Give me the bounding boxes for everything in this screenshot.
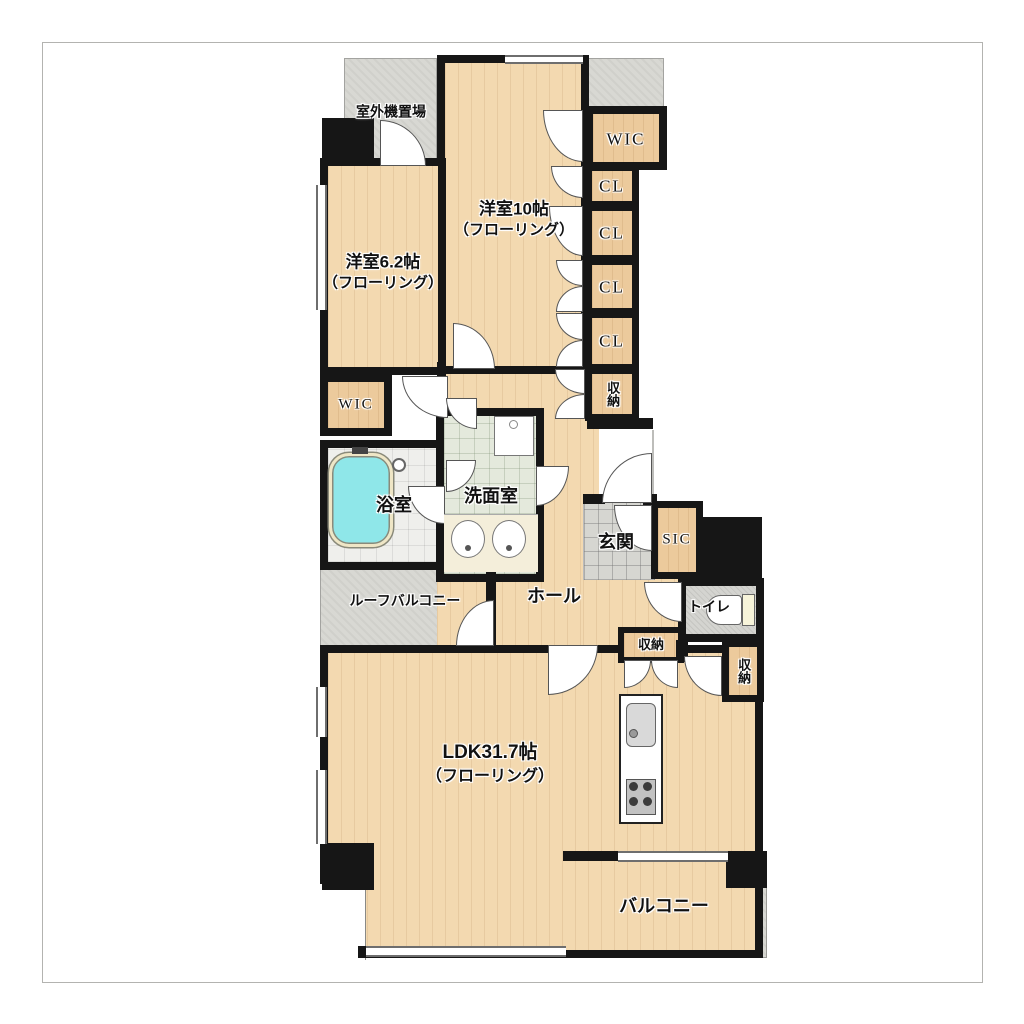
shower-icon — [392, 458, 406, 472]
label-wic-top: WIC — [606, 128, 645, 149]
wall-column-bottomleft — [322, 843, 374, 890]
label-ldk: LDK31.7帖 — [442, 741, 537, 765]
wall — [563, 851, 623, 861]
sink-bowl — [451, 520, 485, 558]
label-storage-hall: 収納 — [638, 637, 664, 653]
label-cl2: CL — [599, 222, 625, 243]
label-sic: SIC — [662, 531, 691, 550]
floorplan: 室外機置場 洋室10帖 （フローリング） 洋室6.2帖 （フローリング） WIC… — [0, 0, 1024, 1024]
window-balcony — [618, 851, 728, 862]
wall-column-balcony — [726, 851, 767, 888]
bathtub-faucet-icon — [352, 447, 368, 454]
label-entrance: 玄関 — [598, 531, 634, 554]
label-roof-balcony: ルーフバルコニー — [350, 592, 461, 610]
label-hall: ホール — [527, 585, 581, 608]
label-bedroom62: 洋室6.2帖 — [346, 251, 421, 272]
label-storage-ldk: 収納 — [735, 658, 751, 684]
label-bedroom62-sub: （フローリング） — [323, 275, 443, 294]
stove-burner-icon — [643, 797, 652, 806]
washing-machine-drain-icon — [509, 420, 518, 429]
window — [316, 770, 327, 844]
label-bedroom10: 洋室10帖 — [479, 198, 549, 219]
window-ldk-south — [366, 946, 566, 957]
kitchen-sink — [626, 703, 656, 747]
sink-drain-icon — [465, 545, 471, 551]
sink-bowl — [492, 520, 526, 558]
porch-edge-line — [652, 430, 654, 500]
label-ldk-sub: （フローリング） — [426, 767, 554, 787]
kitchen-faucet-icon — [629, 729, 638, 738]
label-cl4: CL — [599, 330, 625, 351]
label-bathroom: 浴室 — [376, 494, 412, 517]
label-cl1: CL — [599, 175, 625, 196]
window — [316, 687, 327, 737]
area-outdoor-gray-topright — [588, 58, 664, 110]
label-toilet: トイレ — [688, 598, 730, 616]
sink-drain-icon — [506, 545, 512, 551]
stove-burner-icon — [629, 797, 638, 806]
label-cl3: CL — [599, 276, 625, 297]
label-storage-upper: 収納 — [604, 381, 620, 407]
wall-block-entrance-east — [698, 517, 762, 583]
label-washroom: 洗面室 — [464, 485, 518, 508]
wall — [587, 418, 653, 429]
wall-column-topleft — [322, 118, 374, 164]
toilet-tank — [742, 594, 755, 626]
stove-burner-icon — [643, 782, 652, 791]
label-balcony: バルコニー — [619, 895, 709, 918]
label-bedroom10-sub: （フローリング） — [454, 222, 574, 241]
label-wic-left: WIC — [338, 396, 373, 415]
window-bedroom10-north — [505, 55, 583, 64]
stove-burner-icon — [629, 782, 638, 791]
label-outdoor-unit: 室外機置場 — [356, 103, 426, 121]
